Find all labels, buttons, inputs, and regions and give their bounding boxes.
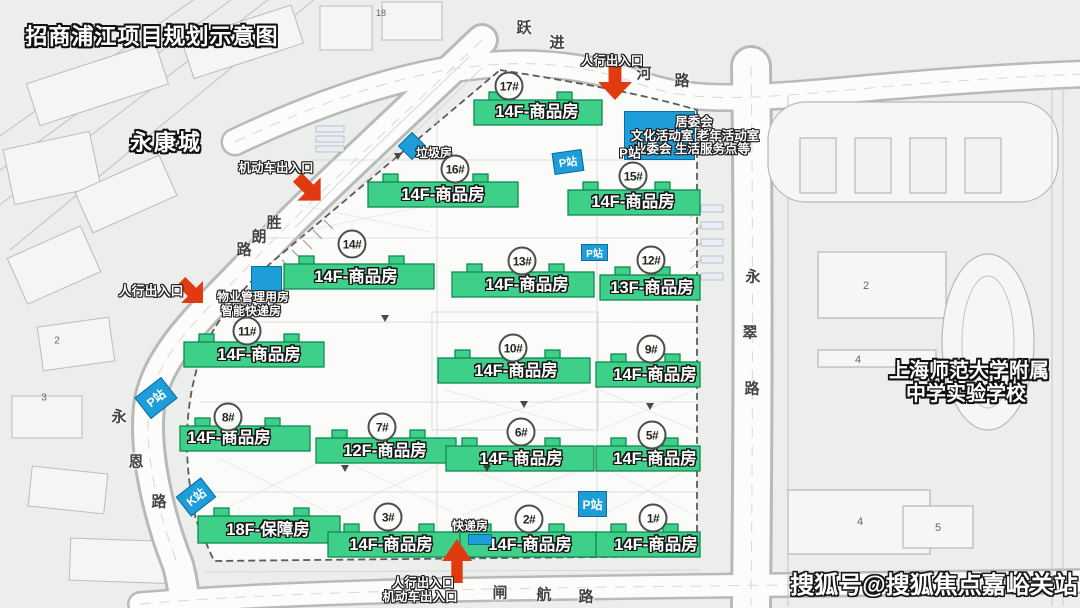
p-station-label: P站 [582,496,602,513]
unit-circle-16: 16# [441,155,470,184]
road-yongcui-char: 路 [744,378,759,399]
building-type-label-17: 14F-商品房 [495,104,578,121]
unit-circle-13: 13# [508,247,537,276]
unit-circle-15: 15# [619,162,648,191]
building-type-label-8: 14F-商品房 [187,430,270,447]
unit-circle-7: 7# [368,413,397,442]
road-zhahang-char: 路 [578,586,593,607]
unit-circle-10: 10# [499,334,528,363]
road-zhahang-char: 航 [536,584,551,605]
building-type-label-11: 14F-商品房 [217,347,300,364]
building-type-label-16: 14F-商品房 [401,187,484,204]
unit-circle-17: 17# [495,72,524,101]
community-label-line3: 业委会 生活服务点等 [634,143,750,156]
neighborhood-label: 永康城 [130,132,202,154]
unit-circle-3: 3# [374,503,403,532]
building-type-label-1: 14F-商品房 [614,537,697,554]
building-type-label-15: 14F-商品房 [591,194,674,211]
context-block-number: 3 [41,393,47,404]
context-block-number: 2 [54,336,60,347]
building-type-label-5: 14F-商品房 [613,451,696,468]
delivery-room-box [468,534,492,545]
entrance-label-pedestrian-west: 人行出入口 [118,285,183,298]
road-yongen-char: 路 [151,491,166,512]
entrance-label-pedestrian-south: 人行出入口 [392,577,455,590]
school-name-line2: 中学实验学校 [906,384,1026,404]
road-shenglang-char: 胜 [266,212,281,233]
building-type-label-10: 14F-商品房 [474,363,557,380]
entrance-label-vehicle-west: 机动车出入口 [238,162,313,175]
p-station-box-south: P站 [578,491,607,517]
p-station-box-mid: P站 [581,244,608,261]
unit-circle-2: 2# [515,505,544,534]
context-block-number: 18 [376,8,386,18]
unit-circle-6: 6# [507,418,536,447]
road-shenglang-char: 朗 [251,226,266,247]
community-label-line2: 文化活动室 老年活动室 [631,130,759,143]
unit-circle-14: 14# [338,230,367,259]
p-station-label: P站 [143,385,169,411]
p-station-box-north: P站 [552,149,585,175]
school-building-number: 4 [857,516,863,528]
p-station-label: P站 [558,153,578,171]
unit-circle-12: 12# [637,246,666,275]
building-type-label-13: 14F-商品房 [485,277,568,294]
entrance-label-pedestrian-north: 人行出入口 [581,55,644,68]
unit-circle-11: 11# [233,317,262,346]
road-yongcui-char: 翠 [742,322,757,343]
road-zhahang-char: 闸 [492,582,507,603]
building-type-label-7: 12F-商品房 [343,443,426,460]
p-station-label: P站 [586,245,603,260]
road-yongen-char: 恩 [128,451,143,472]
property-label-line2: 智能快递房 [221,305,281,317]
property-label-line1: 物业管理用房 [217,291,289,303]
unit-circle-1: 1# [639,504,668,533]
building-type-label-12: 13F-商品房 [610,280,693,297]
building-type-label-2: 14F-商品房 [488,537,571,554]
map-title: 招商浦江项目规划示意图 [25,26,278,48]
unit-circle-9: 9# [637,335,666,364]
road-yuejinhe-char: 进 [549,32,564,53]
entrance-label-vehicle-south: 机动车出入口 [382,591,457,604]
road-yuejinhe-char: 跃 [516,17,531,38]
community-label-line1: 居委会 [675,116,713,129]
school-building-number: 4 [855,354,861,366]
road-yongen-char: 永 [111,406,126,427]
building-type-label-14: 14F-商品房 [314,269,397,286]
property-management-box [251,266,282,293]
school-building-number: 2 [863,280,869,292]
road-yuejinhe-char: 路 [674,70,689,91]
building-type-label-9: 14F-商品房 [613,367,696,384]
building-type-label-3: 14F-商品房 [349,537,432,554]
school-building-number: 5 [935,522,941,534]
unit-circle-8: 8# [214,403,243,432]
road-shenglang-char: 路 [236,239,251,260]
delivery-room-label: 快递房 [452,520,488,532]
site-plan-map: 招商浦江项目规划示意图 永康城 上海师范大学附属 中学实验学校 搜狐号@搜狐焦点… [0,0,1080,608]
p-station-text-north: P站 [619,147,641,160]
road-yongcui-char: 永 [745,266,760,287]
building-type-label-18f: 18F-保障房 [226,522,309,539]
unit-circle-5: 5# [638,421,667,450]
school-name-line1: 上海师范大学附属 [889,361,1049,381]
building-type-label-6: 14F-商品房 [479,451,562,468]
watermark: 搜狐号@搜狐焦点嘉峪关站 [790,574,1077,598]
